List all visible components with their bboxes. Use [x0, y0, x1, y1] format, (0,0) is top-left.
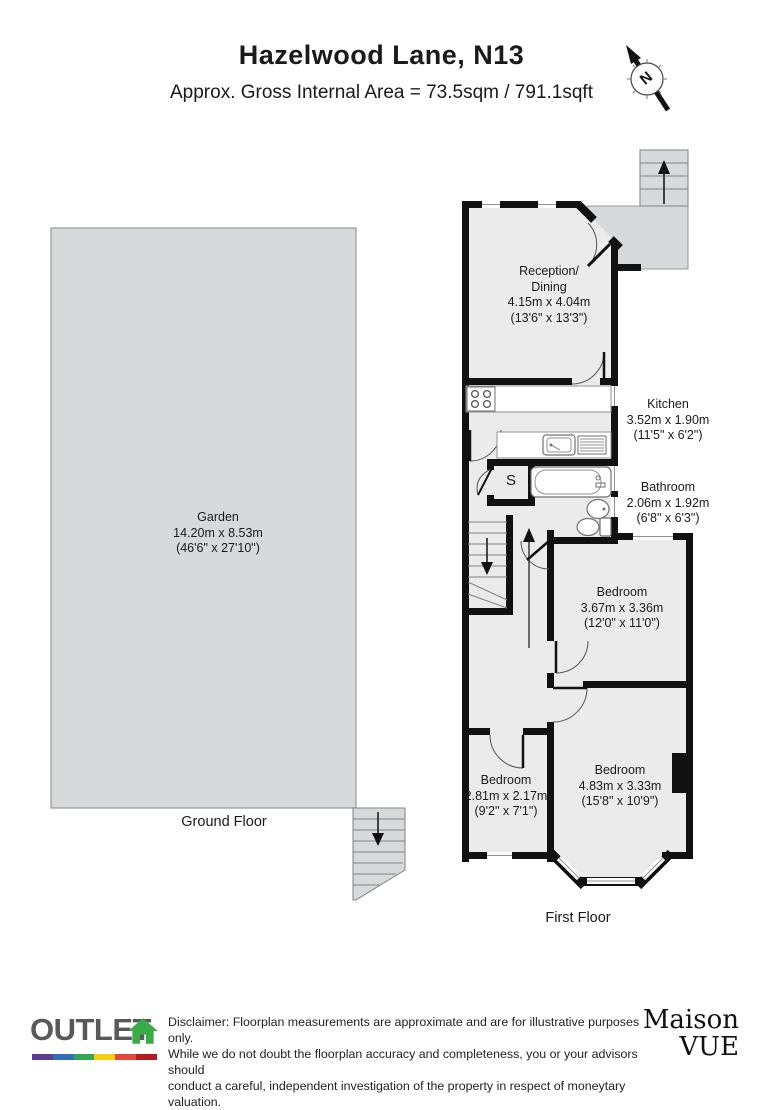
bathtub-icon	[531, 467, 611, 497]
hob-icon	[467, 387, 495, 411]
sink-icon	[543, 435, 606, 455]
bedroom-large-label: Bedroom 4.83m x 3.33m (15'8" x 10'9")	[579, 763, 662, 810]
disclaimer-text: Disclaimer: Floorplan measurements are a…	[168, 1014, 646, 1110]
rainbow-bar	[32, 1054, 157, 1060]
floorplan-canvas	[0, 0, 763, 1080]
reception-label: Reception/ Dining 4.15m x 4.04m (13'6" x…	[508, 264, 591, 326]
page-title: Hazelwood Lane, N13	[0, 40, 763, 71]
bedroom-small-label: Bedroom 2.81m x 2.17m (9'2" x 7'1")	[465, 773, 548, 820]
maison-vue-logo: Maison VUE	[629, 1006, 739, 1061]
store-label: S	[506, 472, 516, 489]
garden-steps	[353, 808, 405, 900]
bathroom-label: Bathroom 2.06m x 1.92m (6'8" x 6'3")	[627, 480, 710, 527]
first-floor-label: First Floor	[545, 910, 610, 926]
garden-label: Garden 14.20m x 8.53m (46'6" x 27'10")	[173, 510, 263, 557]
house-icon	[126, 1014, 160, 1053]
toilet-icon	[577, 518, 611, 536]
kitchen-label: Kitchen 3.52m x 1.90m (11'5" x 6'2")	[627, 397, 710, 444]
basin-icon	[587, 500, 609, 519]
ground-floor-label: Ground Floor	[181, 814, 266, 830]
bedroom-middle-label: Bedroom 3.67m x 3.36m (12'0" x 11'0")	[581, 585, 664, 632]
